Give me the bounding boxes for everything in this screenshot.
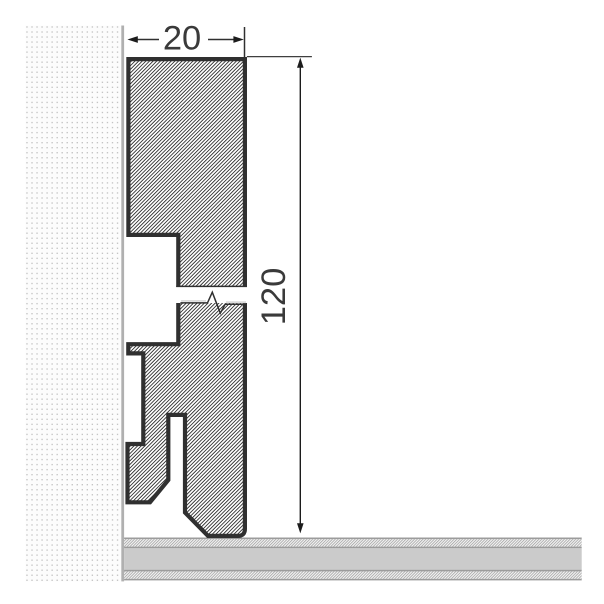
svg-text:20: 20 bbox=[163, 19, 201, 57]
svg-text:120: 120 bbox=[255, 268, 293, 326]
